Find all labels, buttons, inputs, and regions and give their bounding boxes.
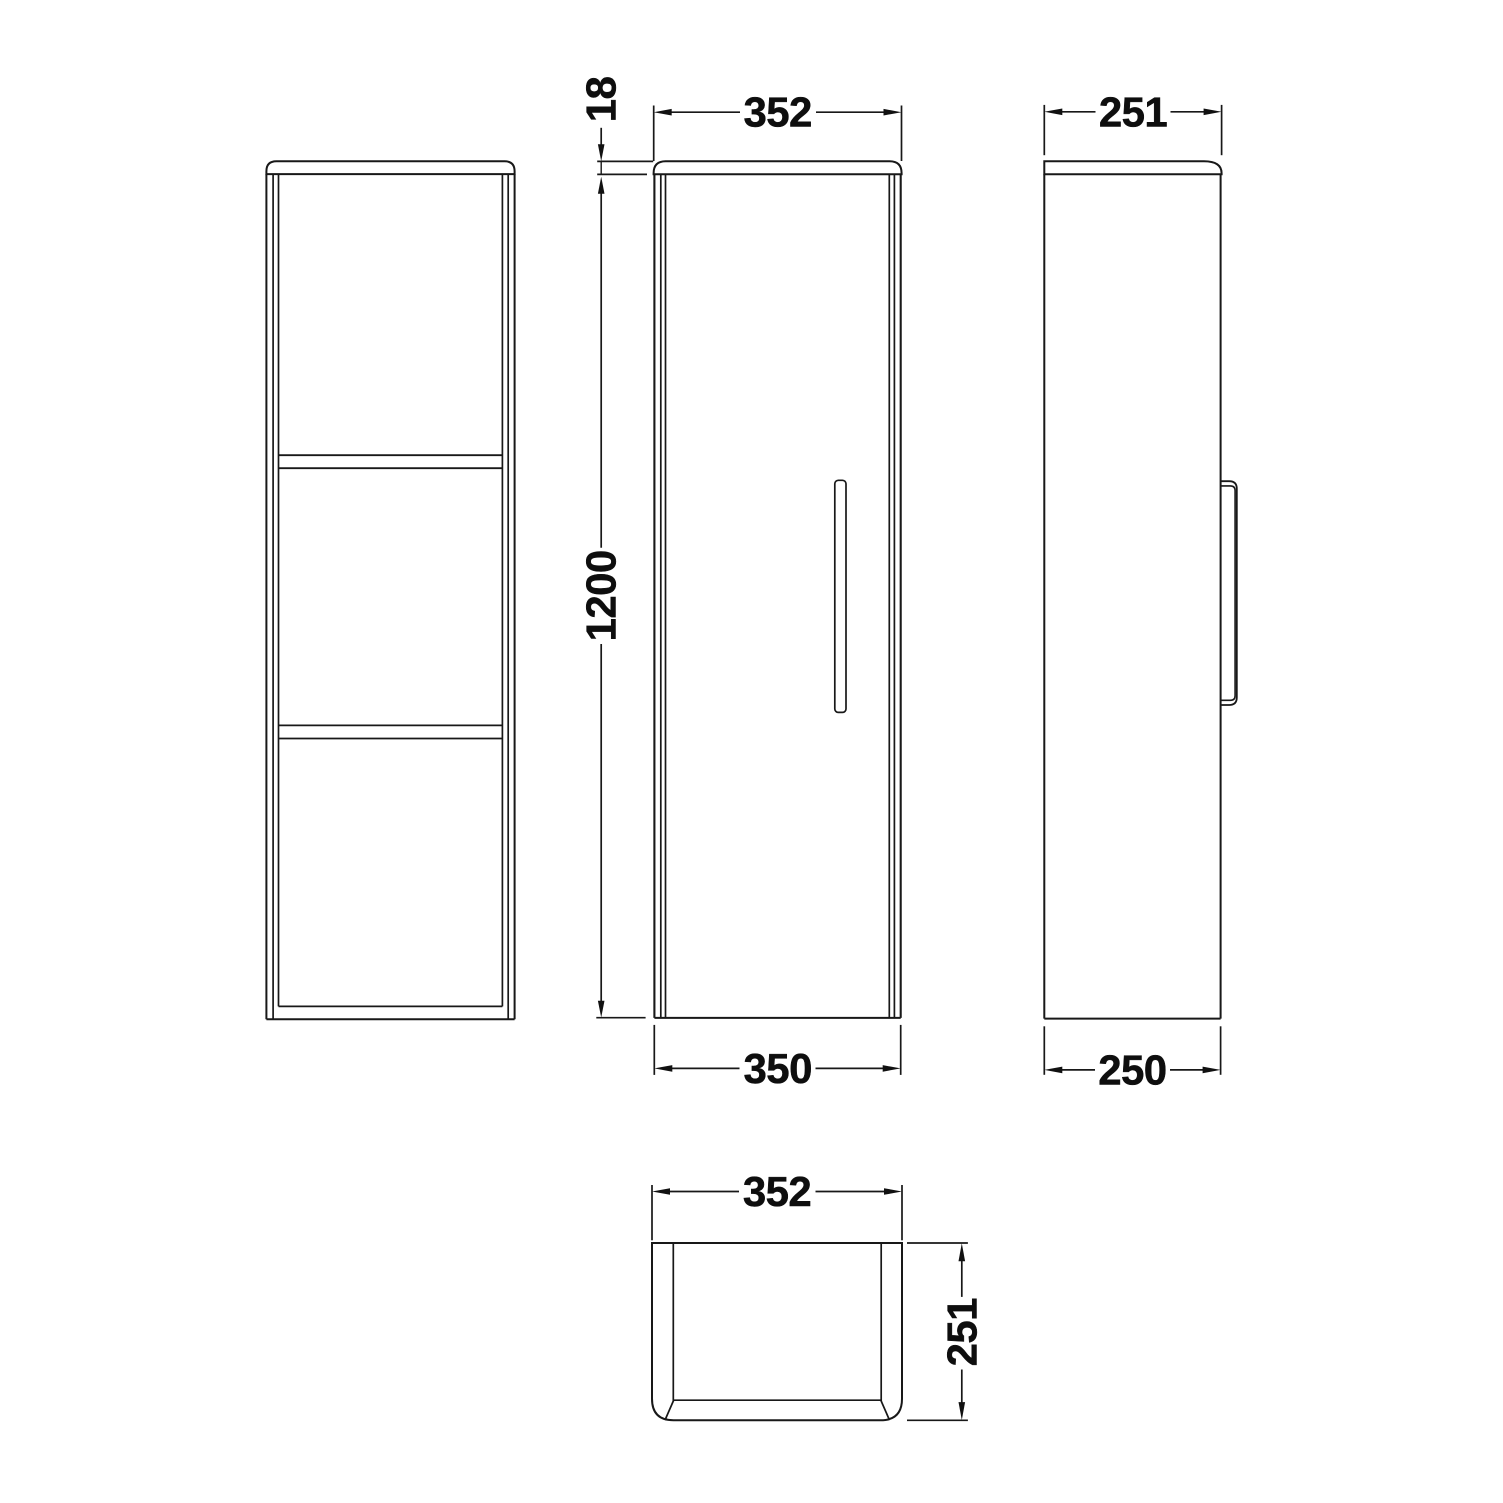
svg-text:352: 352 xyxy=(743,1168,811,1215)
svg-text:1200: 1200 xyxy=(578,550,625,641)
svg-text:250: 250 xyxy=(1098,1046,1166,1093)
svg-text:251: 251 xyxy=(938,1298,985,1367)
svg-text:18: 18 xyxy=(577,77,624,123)
svg-text:352: 352 xyxy=(743,89,811,136)
svg-text:350: 350 xyxy=(744,1045,812,1092)
svg-text:251: 251 xyxy=(1099,88,1168,135)
